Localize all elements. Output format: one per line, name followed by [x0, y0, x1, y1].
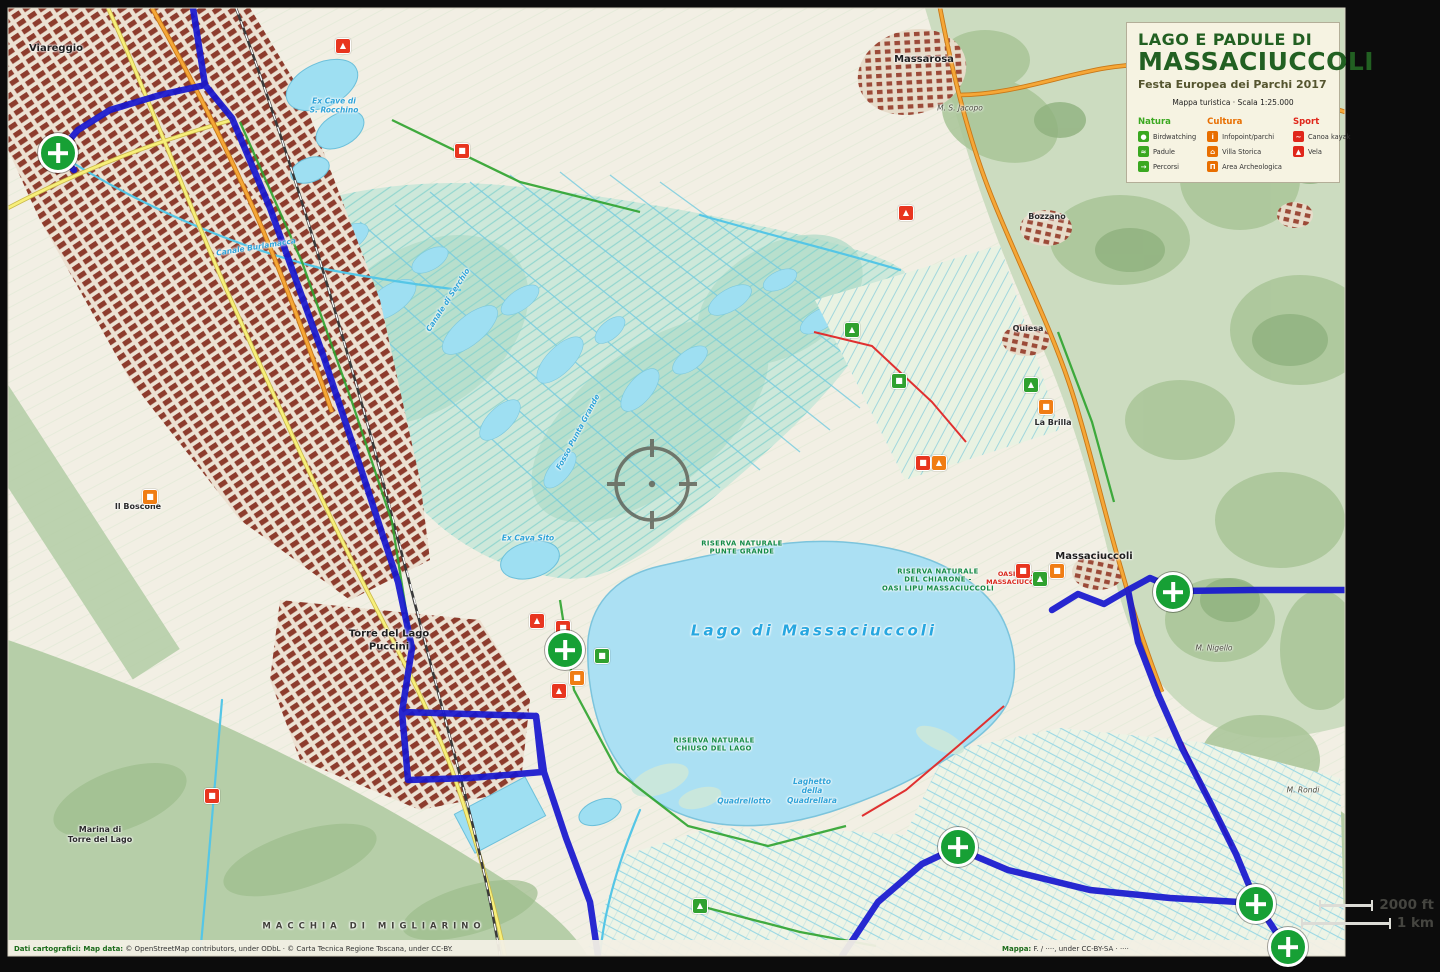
attribution-right-text: F. / ····, under CC-BY-SA · ···· [1031, 945, 1129, 953]
legend-item: ▲Vela [1293, 146, 1351, 157]
scale-row-metric: 1 km [1301, 915, 1434, 931]
map-label: La Brilla [1035, 418, 1072, 428]
canoe-icon: ~ [1293, 131, 1304, 142]
archaeology-icon: Π [1207, 161, 1218, 172]
map-screenshot: ViareggioEx Cave di S. RocchinoMassarosa… [0, 0, 1440, 972]
poi-glyph: ■ [598, 652, 606, 660]
poi-icon[interactable]: ■ [454, 143, 470, 159]
poi-glyph: ■ [919, 459, 927, 467]
historic-villa-icon: ⌂ [1207, 146, 1218, 157]
legend-column-header: Sport [1293, 117, 1351, 127]
scale-ruler-ft [1319, 904, 1373, 907]
infopoint-icon: i [1207, 131, 1218, 142]
legend-column-sport: Sport~Canoa kayak▲Vela [1293, 117, 1351, 172]
poi-icon[interactable]: ■ [1038, 399, 1054, 415]
scale-ruler-km [1301, 922, 1391, 925]
legend: Natura●Birdwatching≈Padule→PercorsiCultu… [1138, 117, 1328, 172]
poi-glyph: ▲ [534, 617, 540, 625]
poi-icon[interactable]: ▲ [529, 613, 545, 629]
legend-item-label: Vela [1308, 148, 1322, 156]
poi-icon[interactable]: ■ [1049, 563, 1065, 579]
poi-glyph: ■ [1053, 567, 1061, 575]
binoculars-icon: ● [1138, 131, 1149, 142]
poi-glyph: ■ [1042, 403, 1050, 411]
poi-icon[interactable]: ▲ [335, 38, 351, 54]
map-label: Torre del Lago Puccini [349, 629, 430, 654]
poi-icon[interactable]: ■ [1015, 563, 1031, 579]
waypoint-marker[interactable] [1153, 572, 1193, 612]
map-label: Laghetto della Quadrellara [787, 777, 837, 805]
waypoint-marker[interactable] [938, 827, 978, 867]
scale-row-imperial: 2000 ft [1319, 897, 1434, 913]
map-label: Quiesa [1013, 324, 1044, 334]
legend-column-cultura: CulturaiInfopoint/parchi⌂Villa StoricaΠA… [1207, 117, 1282, 172]
map-subtitle: Festa Europea dei Parchi 2017 [1138, 78, 1328, 91]
map-label: Canale Burlamacca [216, 236, 297, 258]
waypoint-marker[interactable] [1268, 927, 1308, 967]
attribution-left-text: © OpenStreetMap contributors, under ODbL… [123, 945, 453, 953]
attribution-left: Dati cartografici: Map data: © OpenStree… [14, 945, 453, 953]
map-label: Bozzano [1028, 212, 1066, 222]
poi-icon[interactable]: ■ [915, 455, 931, 471]
legend-item: ΠArea Archeologica [1207, 161, 1282, 172]
poi-icon[interactable]: ▲ [551, 683, 567, 699]
legend-item-label: Canoa kayak [1308, 133, 1351, 141]
poi-icon[interactable]: ■ [891, 373, 907, 389]
poi-glyph: ▲ [556, 687, 562, 695]
poi-icon[interactable]: ■ [142, 489, 158, 505]
map-title-line2: MASSACIUCCOLI [1138, 49, 1328, 75]
poi-icon[interactable]: ▲ [844, 322, 860, 338]
map-label: Quadrellotto [717, 796, 771, 805]
legend-item-label: Padule [1153, 148, 1175, 156]
poi-icon[interactable]: ▲ [898, 205, 914, 221]
map-title-card: LAGO E PADULE DI MASSACIUCCOLI Festa Eur… [1126, 22, 1340, 183]
waypoint-marker[interactable] [1236, 884, 1276, 924]
legend-column-header: Natura [1138, 117, 1196, 127]
legend-item-label: Infopoint/parchi [1222, 133, 1274, 141]
map-label: Viareggio [29, 43, 83, 56]
poi-icon[interactable]: ■ [569, 670, 585, 686]
legend-item: iInfopoint/parchi [1207, 131, 1282, 142]
map-label: M. Rondi [1287, 785, 1320, 794]
map-label: Ex Cave di S. Rocchino [310, 97, 359, 116]
attribution-left-label: Dati cartografici: Map data: [14, 945, 123, 953]
map-label: Ex Cava Sito [502, 533, 554, 542]
poi-glyph: ■ [1019, 567, 1027, 575]
poi-glyph: ▲ [849, 326, 855, 334]
map-label: Riserva Naturale del Chiarone - Oasi LIP… [882, 567, 994, 592]
poi-glyph: ■ [573, 674, 581, 682]
legend-item: ≈Padule [1138, 146, 1196, 157]
poi-glyph: ▲ [1037, 575, 1043, 583]
poi-glyph: ■ [146, 493, 154, 501]
legend-item: ~Canoa kayak [1293, 131, 1351, 142]
legend-item-label: Birdwatching [1153, 133, 1196, 141]
map-label: Massaciuccoli [1055, 551, 1132, 564]
poi-icon[interactable]: ■ [594, 648, 610, 664]
poi-glyph: ▲ [903, 209, 909, 217]
poi-icon[interactable]: ▲ [1032, 571, 1048, 587]
scale-label-imperial: 2000 ft [1379, 897, 1434, 913]
sail-icon: ▲ [1293, 146, 1304, 157]
legend-item-label: Villa Storica [1222, 148, 1261, 156]
poi-icon[interactable]: ▲ [1023, 377, 1039, 393]
map-label: Marina di Torre del Lago [68, 825, 132, 845]
poi-glyph: ■ [208, 792, 216, 800]
poi-icon[interactable]: ▲ [692, 898, 708, 914]
poi-icon[interactable]: ▲ [931, 455, 947, 471]
map-label: Canale di Serchio [424, 267, 472, 334]
poi-glyph: ■ [458, 147, 466, 155]
map-label: M. Nigello [1195, 643, 1232, 652]
legend-item: ●Birdwatching [1138, 131, 1196, 142]
poi-glyph: ▲ [936, 459, 942, 467]
waypoint-marker[interactable] [545, 630, 585, 670]
map-label: Lago di Massaciuccoli [691, 622, 937, 641]
map-scale-note: Mappa turistica · Scala 1:25.000 [1138, 98, 1328, 107]
poi-glyph: ▲ [340, 42, 346, 50]
legend-item-label: Area Archeologica [1222, 163, 1282, 171]
scale-label-metric: 1 km [1397, 915, 1434, 931]
map-label: Fosso Punta Grande [554, 393, 602, 472]
legend-item: →Percorsi [1138, 161, 1196, 172]
marsh-icon: ≈ [1138, 146, 1149, 157]
poi-glyph: ■ [895, 377, 903, 385]
poi-glyph: ▲ [1028, 381, 1034, 389]
poi-glyph: ▲ [697, 902, 703, 910]
map-label: Massarosa [894, 54, 954, 67]
legend-column-header: Cultura [1207, 117, 1282, 127]
legend-column-natura: Natura●Birdwatching≈Padule→Percorsi [1138, 117, 1196, 172]
waypoint-marker[interactable] [38, 133, 78, 173]
map-label: M. S. Jacopo [937, 103, 983, 112]
map-label: Riserva Naturale Chiuso del Lago [673, 737, 754, 754]
legend-item-label: Percorsi [1153, 163, 1179, 171]
trail-icon: → [1138, 161, 1149, 172]
legend-item: ⌂Villa Storica [1207, 146, 1282, 157]
map-label: MACCHIA DI MIGLIARINO [262, 922, 485, 933]
attribution-right: Mappa: F. / ····, under CC-BY-SA · ···· [1002, 945, 1129, 953]
scale-bar: 2000 ft 1 km [1288, 897, 1434, 931]
poi-icon[interactable]: ■ [204, 788, 220, 804]
map-label: Riserva Naturale Punte Grande [701, 540, 782, 557]
attribution-right-label: Mappa: [1002, 945, 1031, 953]
